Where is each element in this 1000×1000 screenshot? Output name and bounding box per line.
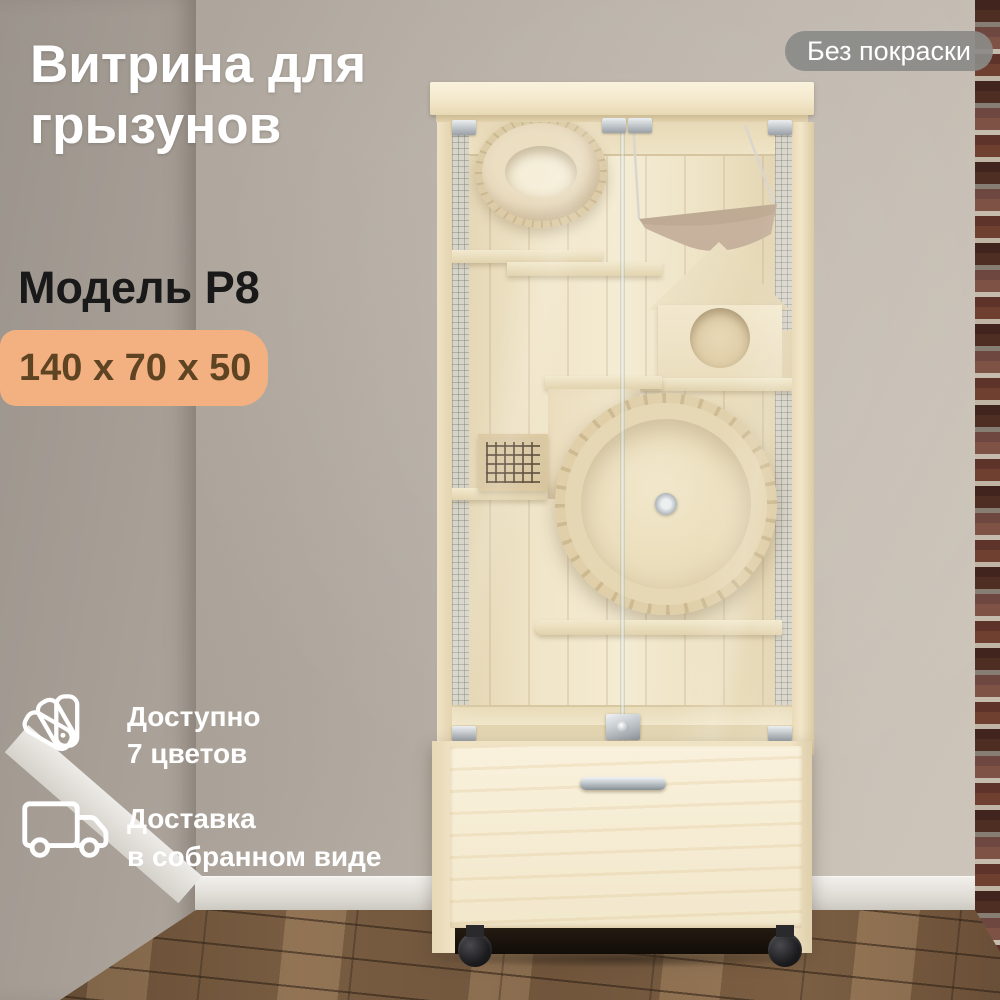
- drawer-front: [450, 746, 802, 928]
- title-line-2: грызунов: [30, 95, 366, 156]
- feature-colors-text: Доступно 7 цветов: [127, 698, 261, 772]
- finish-badge: Без покраски: [785, 31, 993, 71]
- hinge-top-center-right: [628, 118, 652, 133]
- caster-wheel-left: [458, 933, 492, 967]
- rodent-display-cabinet: [430, 78, 814, 970]
- glass-door-seam: [620, 122, 625, 755]
- product-photo-scene: Витрина для грызунов Без покраски Модель…: [0, 0, 1000, 1000]
- page-title: Витрина для грызунов: [30, 34, 366, 156]
- glass-door-left: [452, 122, 621, 755]
- cabinet-crown: [430, 82, 814, 115]
- drawer-handle: [580, 777, 666, 790]
- color-swatches-icon: [24, 692, 81, 752]
- feature-delivery-line-2: в собранном виде: [127, 838, 381, 876]
- feature-colors-line-1: Доступно: [127, 698, 261, 735]
- feature-colors-line-2: 7 цветов: [127, 735, 261, 772]
- dimensions-badge: 140 x 70 x 50: [0, 330, 268, 406]
- hinge-bottom-right: [768, 726, 792, 741]
- hinge-top-left: [452, 120, 476, 135]
- door-latch: [606, 714, 640, 740]
- latch-knob: [617, 721, 629, 733]
- title-line-1: Витрина для: [30, 34, 366, 95]
- cabinet-side-right: [792, 122, 814, 755]
- feature-delivery-line-1: Доставка: [127, 800, 381, 838]
- brick-wall-strip: [975, 0, 1000, 958]
- caster-wheel-right: [768, 933, 802, 967]
- plinth-shadow: [455, 928, 787, 954]
- model-label: Модель Р8: [18, 262, 260, 314]
- delivery-truck-icon: [18, 797, 120, 867]
- feature-delivery-text: Доставка в собранном виде: [127, 800, 381, 876]
- hinge-top-right: [768, 120, 792, 135]
- hinge-top-center-left: [602, 118, 626, 133]
- cabinet-interior: [452, 122, 792, 755]
- glass-door-right: [623, 122, 792, 755]
- cabinet-side-left: [437, 122, 452, 755]
- hinge-bottom-left: [452, 726, 476, 741]
